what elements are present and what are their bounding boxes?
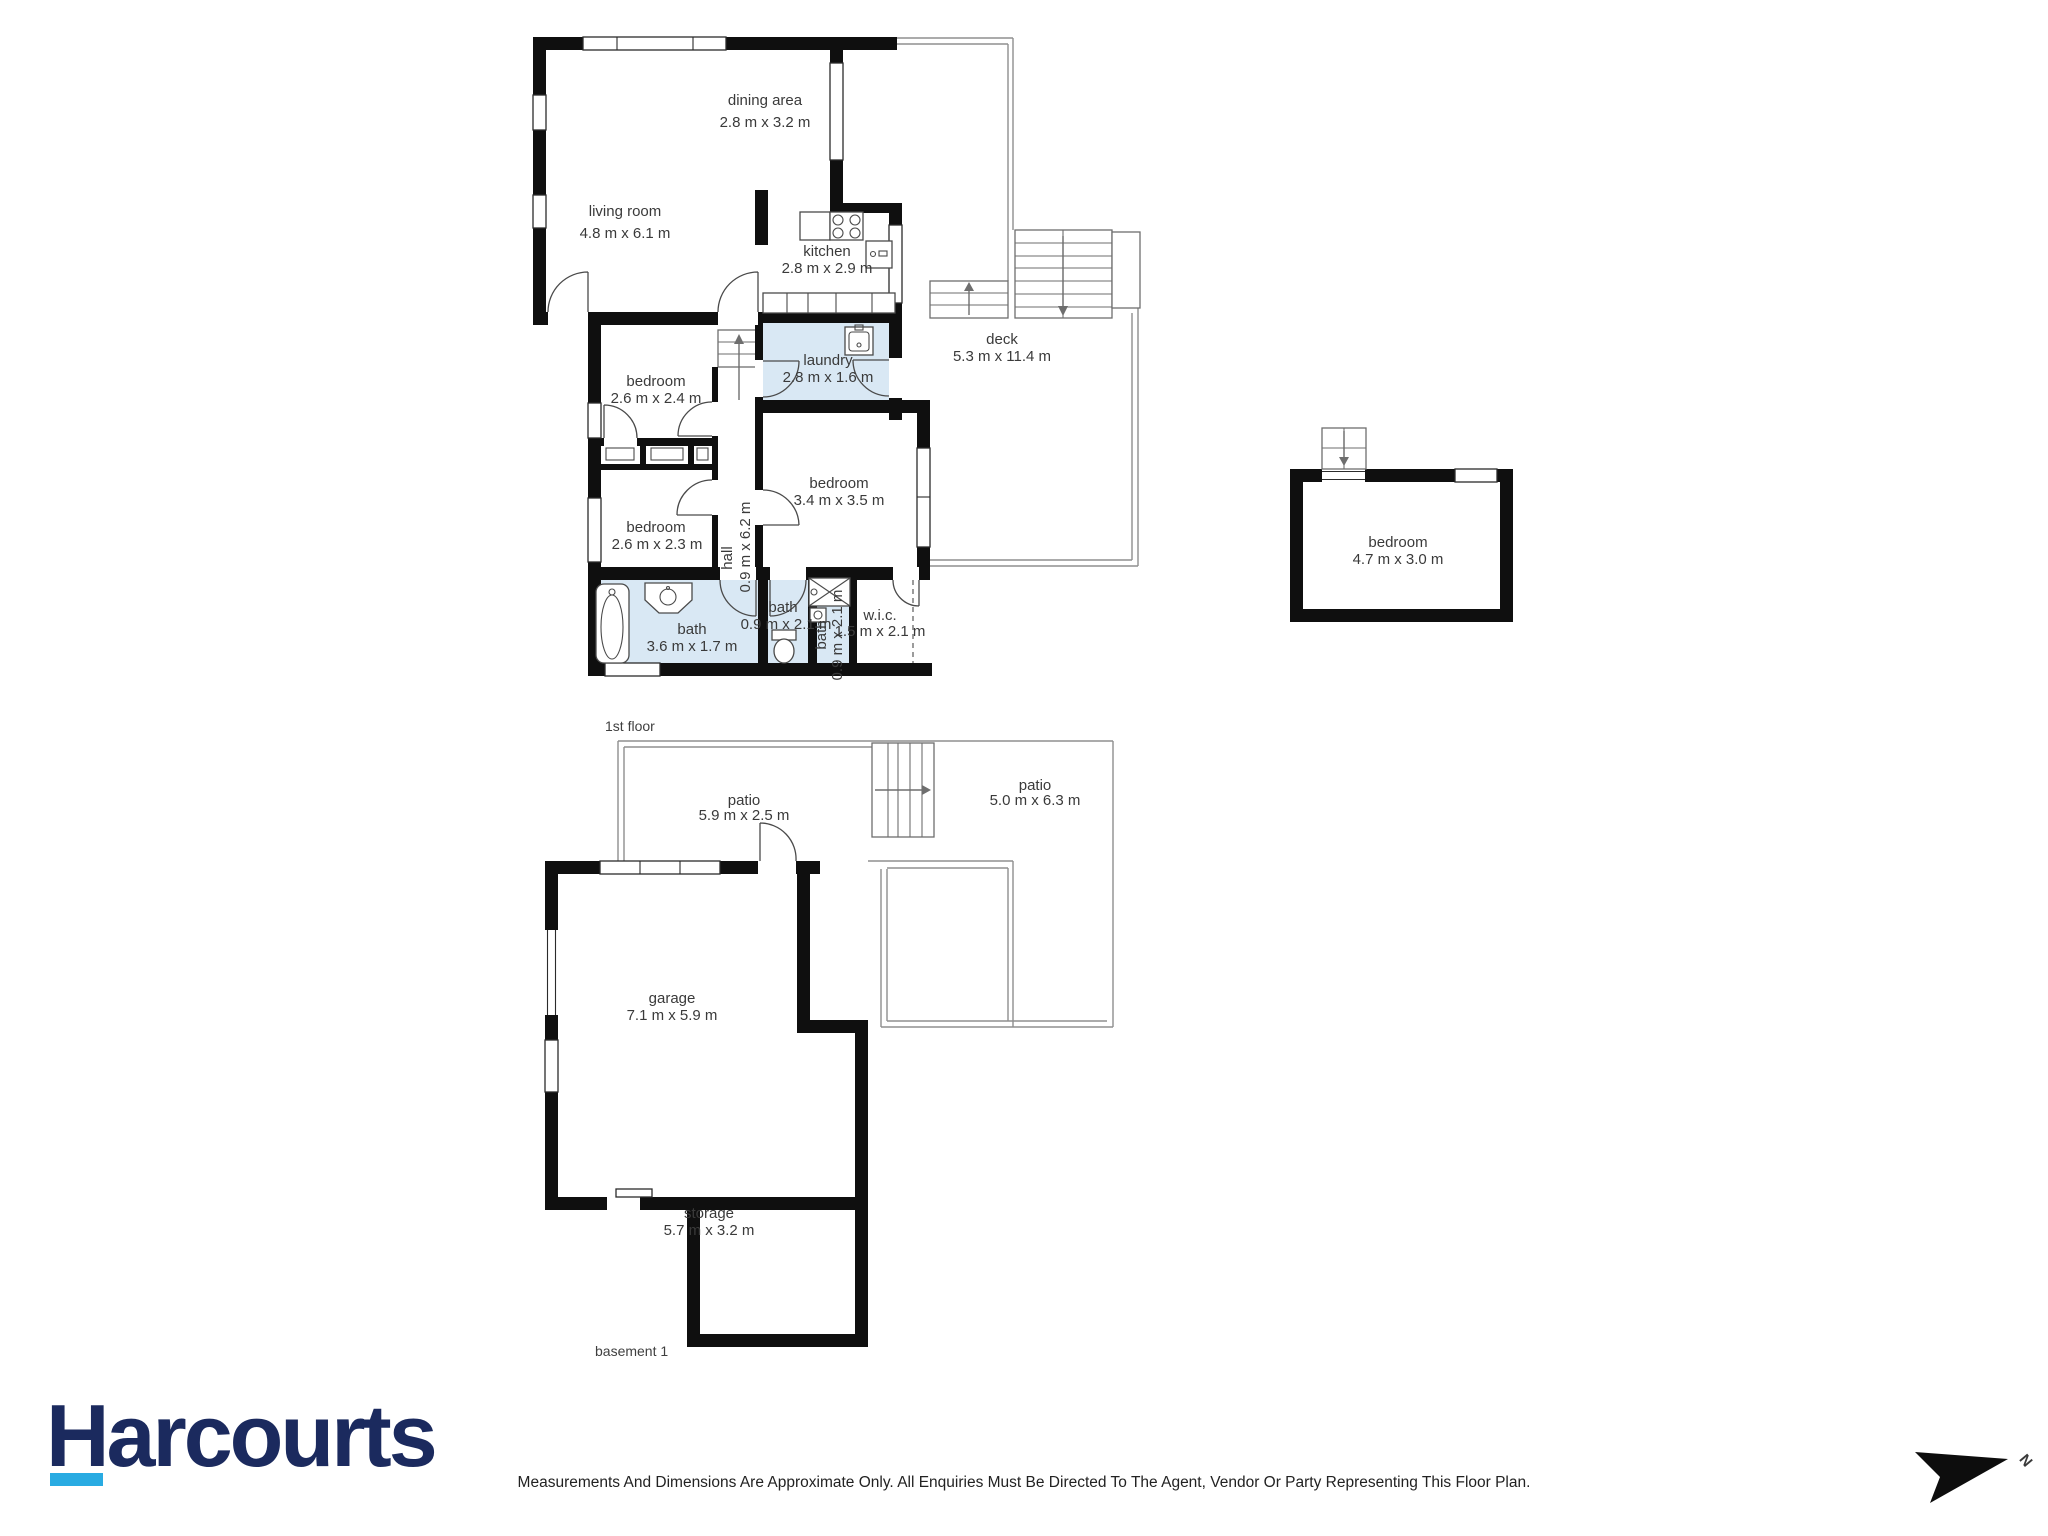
room-label-laundry: laundry (803, 352, 853, 369)
room-dims-living: 4.8 m x 6.1 m (580, 225, 671, 242)
room-dims-bedroom4: 4.7 m x 3.0 m (1353, 551, 1444, 568)
room-dims-wic: 1.5 m x 2.1 m (835, 623, 926, 640)
harcourts-logo: Harcourts (46, 1392, 435, 1480)
floor-titles: 1st floor basement 1 (595, 718, 668, 1359)
room-label-garage: garage (649, 990, 696, 1007)
floorplan-canvas: dining area 2.8 m x 3.2 m living room 4.… (0, 0, 2048, 1536)
room-dims-garage: 7.1 m x 5.9 m (627, 1007, 718, 1024)
room-label-living: living room (589, 203, 662, 220)
room-dims-bedroom3: 3.4 m x 3.5 m (794, 492, 885, 509)
bath2-toilet (772, 630, 796, 663)
deck-stairs (930, 230, 1140, 318)
room-label-storage: storage (684, 1205, 734, 1222)
room-label-kitchen: kitchen (803, 243, 851, 260)
room-dims-bath1: 3.6 m x 1.7 m (647, 638, 738, 655)
basement-walls (545, 861, 868, 1347)
laundry-sink (845, 325, 873, 355)
basement-stairs (872, 743, 934, 837)
room-dims-bedroom2: 2.6 m x 2.3 m (612, 536, 703, 553)
room-dims-bedroom1: 2.6 m x 2.4 m (611, 390, 702, 407)
room-label-bath3: bath (813, 620, 830, 649)
room-label-wic: w.i.c. (862, 607, 896, 624)
room-dims-laundry: 2.8 m x 1.6 m (783, 369, 874, 386)
disclaimer-text: Measurements And Dimensions Are Approxim… (0, 1474, 2048, 1492)
north-label: N (2016, 1451, 2036, 1470)
room-label-deck: deck (986, 331, 1018, 348)
floor1-title: 1st floor (605, 718, 655, 734)
room-dims-deck: 5.3 m x 11.4 m (953, 348, 1051, 365)
room-label-bedroom1: bedroom (626, 373, 685, 390)
room-label-bedroom2: bedroom (626, 519, 685, 536)
floorplan-page: dining area 2.8 m x 3.2 m living room 4.… (0, 0, 2048, 1536)
room-dims-kitchen: 2.8 m x 2.9 m (782, 260, 873, 277)
interior-stairs (718, 330, 760, 400)
room-dims-dining: 2.8 m x 3.2 m (720, 114, 811, 131)
room-label-bedroom3: bedroom (809, 475, 868, 492)
basement-title: basement 1 (595, 1343, 668, 1359)
room-label-dining: dining area (728, 92, 803, 109)
room-label-hall: hall (719, 546, 736, 569)
room-label-bath1: bath (677, 621, 706, 638)
room-dims-storage: 5.7 m x 3.2 m (664, 1222, 755, 1239)
room-label-bedroom4: bedroom (1368, 534, 1427, 551)
detached-bedroom-unit (1290, 428, 1513, 622)
room-label-bath2: bath (768, 599, 797, 616)
room-dims-hall: 0.9 m x 6.2 m (737, 502, 754, 593)
room-dims-patio2: 5.0 m x 6.3 m (990, 792, 1081, 809)
room-dims-patio1: 5.9 m x 2.5 m (699, 807, 790, 824)
